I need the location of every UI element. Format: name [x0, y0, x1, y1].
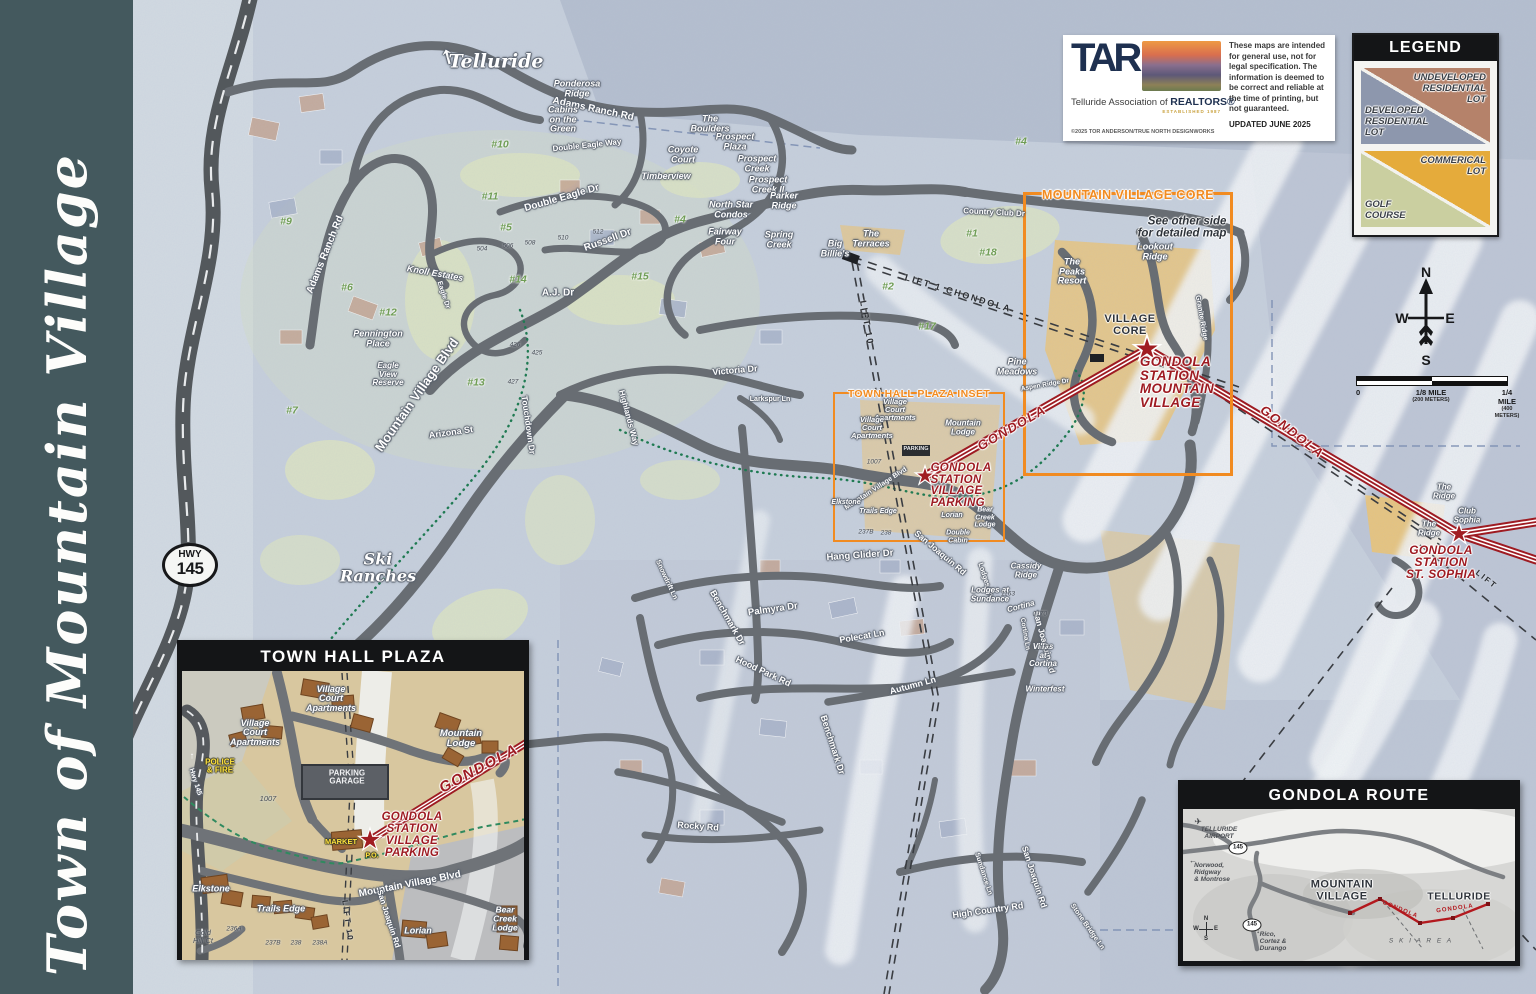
compass-w: W: [1395, 310, 1408, 326]
town-hall-plaza-inset-box-title: TOWN HALL PLAZA INSET: [848, 388, 990, 400]
gondola-route-inset-title: GONDOLA ROUTE: [1183, 785, 1515, 809]
town-hall-plaza-inset-body: Village Court Apartments Village Court A…: [182, 671, 524, 960]
thp-inset-map: [182, 671, 524, 960]
scale-bar-graphic: [1356, 376, 1508, 386]
compass-n: N: [1421, 264, 1431, 280]
tar-logo: TAR: [1071, 41, 1138, 75]
scale-quarter: 1/4 MILE(400 METERS): [1495, 388, 1520, 419]
legend-developed-label: DEVELOPED RESIDENTIAL LOT: [1365, 106, 1428, 139]
gondola-route-inset-body: ✈ TELLURIDE AIRPORT 145 145 ← Norwood, R…: [1183, 809, 1515, 961]
compass-s: S: [1421, 352, 1430, 368]
updated-label: UPDATED JUNE 2025: [1229, 120, 1327, 129]
org-name: Telluride Association of REALTORS®: [1071, 96, 1221, 108]
legend-golf-label: GOLF COURSE: [1365, 200, 1406, 222]
attribution-panel: TAR Telluride Association of REALTORS® E…: [1063, 35, 1335, 141]
mountain-photo: [1142, 41, 1221, 91]
compass-rose: N W E S: [1398, 266, 1454, 370]
scale-zero: 0: [1356, 388, 1360, 397]
map-page: Town of Mountain Village ↑ Telluride Ski…: [0, 0, 1536, 994]
copyright-label: ©2025 TOR ANDERSON/TRUE NORTH DESIGNWORK…: [1071, 129, 1214, 135]
route-compass-line-h: [1199, 929, 1213, 930]
compass-e: E: [1445, 310, 1454, 326]
scale-bar: 0 1/8 MILE(200 METERS) 1/4 MILE(400 METE…: [1356, 376, 1510, 410]
mountain-village-core-box-title: MOUNTAIN VILLAGE CORE: [1042, 188, 1214, 202]
scale-eighth: 1/8 MILE(200 METERS): [1412, 388, 1449, 404]
hwy-145-shield-num: 145: [165, 560, 215, 577]
sidebar-title-band: Town of Mountain Village: [0, 0, 133, 994]
disclaimer-text: These maps are intended for general use,…: [1229, 41, 1327, 115]
hwy-145-shield: HWY 145: [162, 543, 218, 587]
route-inset-map: [1183, 809, 1515, 961]
legend-commercial-golf-swatch: COMMERICAL LOT GOLF COURSE: [1361, 151, 1490, 227]
gondola-route-inset: GONDOLA ROUTE: [1178, 780, 1520, 966]
legend-undeveloped-label: UNDEVELOPED RESIDENTIAL LOT: [1414, 73, 1486, 106]
mountain-village-core-box: MOUNTAIN VILLAGE CORE: [1023, 192, 1233, 476]
town-hall-plaza-inset-title: TOWN HALL PLAZA: [182, 645, 524, 671]
legend-residential-swatch: UNDEVELOPED RESIDENTIAL LOT DEVELOPED RE…: [1361, 68, 1490, 144]
legend-panel: LEGEND UNDEVELOPED RESIDENTIAL LOT DEVEL…: [1352, 33, 1499, 237]
town-hall-plaza-inset-box: TOWN HALL PLAZA INSET: [833, 392, 1005, 542]
page-title: Town of Mountain Village: [35, 153, 99, 976]
established-label: ESTABLISHED 1987: [1071, 109, 1221, 114]
town-hall-plaza-inset: TOWN HALL PLAZA: [177, 640, 529, 960]
legend-commercial-label: COMMERICAL LOT: [1421, 156, 1486, 178]
legend-title: LEGEND: [1354, 35, 1497, 61]
